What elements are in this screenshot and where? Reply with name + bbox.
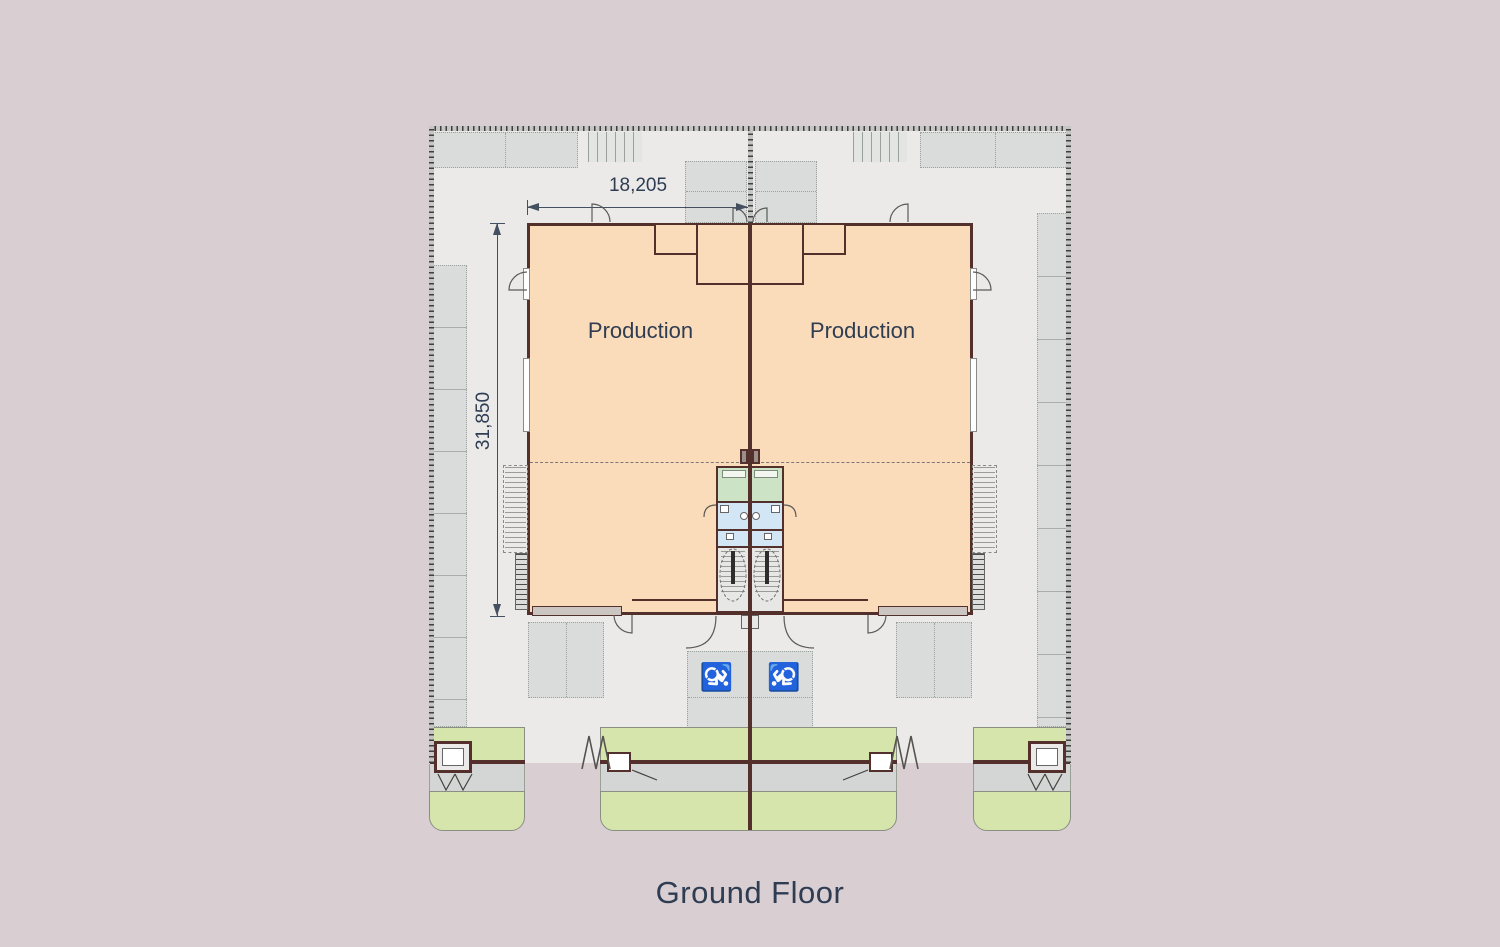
- external-stair-right-treads: [974, 467, 995, 551]
- parking-stall-divider: [995, 133, 996, 167]
- dimension-tick: [490, 616, 505, 617]
- dock-divider: [566, 623, 567, 697]
- wc-fixture: [726, 533, 734, 540]
- dimension-tick: [490, 223, 505, 224]
- inner-wall-line: [632, 599, 716, 601]
- stair-rail: [731, 551, 735, 584]
- core-roof-access: [740, 449, 748, 464]
- parking-square-right: [755, 161, 817, 223]
- sink-fixture: [740, 512, 748, 520]
- window-left-wall: [523, 268, 530, 300]
- stair-rail: [765, 551, 769, 584]
- site-divider-top: [748, 131, 753, 223]
- core-roof-access: [752, 449, 760, 464]
- window-right-wall: [970, 268, 977, 300]
- external-stair-left-treads: [505, 467, 526, 551]
- dock-divider: [934, 623, 935, 697]
- parking-square-divider: [756, 191, 816, 192]
- external-stair-left-lower: [515, 553, 528, 610]
- curb-green-left: [429, 791, 525, 831]
- external-stair-right-lower: [972, 553, 985, 610]
- dimension-line-height: [497, 223, 498, 617]
- inner-wall-line: [784, 599, 868, 601]
- production-label-left: Production: [543, 318, 738, 344]
- window-left-wall: [523, 358, 530, 432]
- production-label-right: Production: [765, 318, 960, 344]
- dimension-height-label: 31,850: [473, 321, 495, 521]
- curb-green-right: [973, 791, 1071, 831]
- gatehouse-center-left: [607, 752, 631, 772]
- parking-band-top-right: [920, 132, 1068, 168]
- gatehouse-left-window: [442, 748, 464, 766]
- wc-fixture: [720, 505, 729, 513]
- parking-band-right: [1037, 213, 1068, 727]
- gatehouse-right-window: [1036, 748, 1058, 766]
- dock-leveler-left: [532, 606, 622, 616]
- parking-comb-left: [588, 132, 642, 162]
- wheelchair-icon-left: ♿: [697, 660, 729, 692]
- gatehouse-center-right: [869, 752, 893, 772]
- party-wall: [748, 224, 752, 613]
- page-title: Ground Floor: [550, 875, 950, 911]
- site-boundary-right: [1066, 126, 1071, 763]
- dimension-width-label: 18,205: [548, 175, 728, 197]
- floor-plan-page: ♿ ♿: [0, 0, 1500, 947]
- dimension-tick: [527, 200, 528, 215]
- dimension-line-width: [527, 207, 748, 208]
- sink-fixture: [752, 512, 760, 520]
- parking-stall-divider: [505, 133, 506, 167]
- parking-band-left: [433, 265, 467, 727]
- site-boundary-left: [429, 126, 434, 763]
- core-fixture: [754, 470, 778, 478]
- dock-leveler-right: [878, 606, 968, 616]
- parking-comb-right: [853, 132, 907, 162]
- window-right-wall: [970, 358, 977, 432]
- site-divider-bottom: [748, 613, 752, 830]
- wc-fixture: [771, 505, 780, 513]
- wc-fixture: [764, 533, 772, 540]
- wheelchair-icon-right: ♿: [771, 660, 803, 692]
- core-fixture: [722, 470, 746, 478]
